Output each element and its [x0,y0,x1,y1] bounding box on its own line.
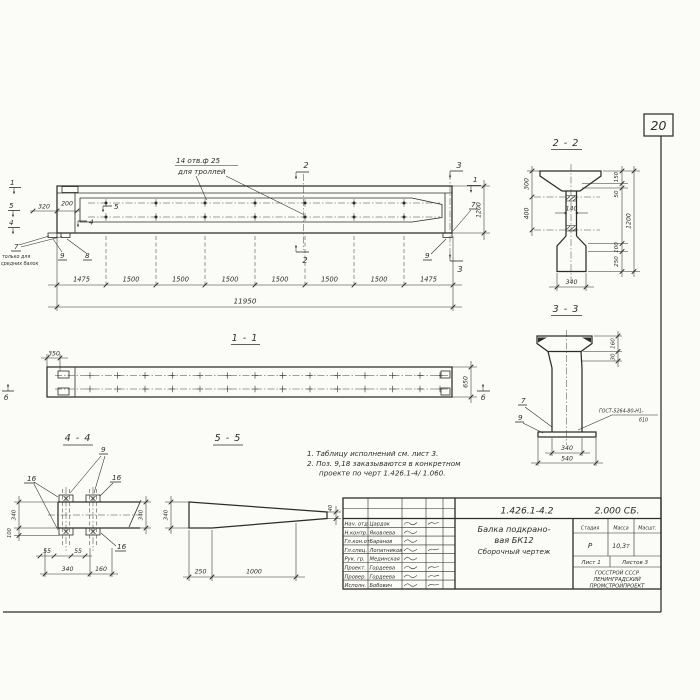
pos-7-right: 7 [471,200,476,209]
dim-200: 200 [61,201,73,208]
name-6: Гордеева [370,574,396,580]
span-dim-6: 1500 [371,276,388,284]
weld-note-line1: ГОСТ-5264-80-Н1- [599,409,644,415]
name-7: Бобович [370,583,393,589]
mark-4-left: 4 [9,218,14,227]
cut-line-1-right: 1 [467,175,481,192]
assembly-drawing: 20 14 отв.ф 25 для троллей 1 5 4 32 [0,0,700,700]
dim-100: 100 [614,242,620,253]
col-scale: Масшт. [638,526,656,532]
section-3-3-title: 3 - 3 [553,304,580,315]
org-line-3: ПРОМСТРОЙПРОЕКТ [590,583,646,590]
section-5-5-title: 5 - 5 [215,433,242,444]
dim-300: 300 [524,178,531,190]
dim-1200-right: 1200 [476,202,483,218]
dim-540: 540 [561,456,573,463]
dim-150: 150 [614,171,620,182]
mark-3-bottom: 3 [457,264,462,274]
org-line-1: ГОССТРОЙ СССР [595,570,640,577]
pos-leaders-right: 7 9 [423,200,478,260]
dim-250: 250 [614,256,620,267]
title-block: Нач. отд Цардак Н.контр. Яковлева Гл.кон… [343,498,661,590]
mark-4-inner: 4 [89,218,94,227]
section-2-2-title: 2 - 2 [553,138,580,149]
cut-line-2: 2 2 [296,160,309,265]
sheet-number: 20 [651,118,667,133]
mark-5-left: 5 [9,201,14,210]
stage-value: Р [588,541,593,550]
dim-340-bottom: 340 [566,279,578,286]
mass-value: 10,3т [612,543,630,550]
pos-8: 8 [85,251,90,260]
drawing-sheet: 20 14 отв.ф 25 для троллей 1 5 4 32 [0,0,700,700]
section-1-1-dims: 350 650 [41,351,477,404]
name-3: Лопатников [369,548,403,554]
note-line-3: проекте по черт 1.426.1-4/ 1.060. [319,469,446,478]
col-mass: Масса [613,526,628,532]
dim-55-a: 55 [43,548,51,555]
role-5: Проект. [345,566,366,572]
mark-5-inner: 5 [114,202,119,211]
dim-1000: 1000 [246,569,262,576]
dim-340-bottom: 340 [62,566,74,573]
main-elevation-view: 14 отв.ф 25 для троллей 1 5 4 320 200 5 … [1,156,490,311]
span-dim-0: 1475 [73,276,90,284]
span-dim-5: 1500 [321,276,338,284]
span-dim-7: 1475 [420,276,437,284]
name-0: Цардак [370,522,391,528]
notes: 1. Таблицу исполнений см. лист 3. 2. Поз… [307,449,461,478]
dim-340: 340 [164,509,170,520]
role-1: Н.контр. [345,530,368,536]
section-3-3-positions: 7 9 ГОСТ-5264-80-Н1- б10 [515,396,658,433]
pos-9-right: 9 [425,251,430,260]
dim-650: 650 [463,376,470,388]
product-title-1: Балка подкрано- [478,524,551,534]
name-2: Баранов [370,539,393,545]
span-dim-2: 1500 [172,276,189,284]
dim-320: 320 [38,204,50,211]
role-3: Гл.спец. [345,548,367,554]
name-4: Мединская [370,557,400,563]
dim-250: 250 [195,569,207,576]
hole-callout: 14 отв.ф 25 для троллей [175,156,304,215]
section-4-4-dims: 340 100 340 55 55 340 160 [7,496,151,577]
left-end-dims: 320 200 [30,201,80,214]
dim-350: 350 [48,351,60,358]
role-0: Нач. отд [345,522,369,528]
name-5: Гордеева [370,566,396,572]
signature-marks [404,522,439,586]
pos-7-left: 7 [14,242,19,251]
dim-1200-section: 1200 [626,213,633,229]
mark-1-right: 1 [473,175,478,184]
dim-55-b: 55 [74,548,82,555]
section-4-4: 4 - 4 9 16 16 16 340 100 [7,433,151,577]
product-title-2: вая БК12 [494,535,533,545]
dim-30: 30 [611,353,617,361]
role-6: Провер. [345,574,367,580]
mark-1-left: 1 [10,178,15,187]
note-line-1: 1. Таблицу исполнений см. лист 3. [307,449,438,458]
pos-16-bottom: 16 [117,542,127,551]
dim-340-right: 340 [139,509,145,520]
span-dim-1: 1500 [123,276,140,284]
signature-rows: Нач. отд Цардак Н.контр. Яковлева Гл.кон… [345,522,440,590]
pos-9: 9 [518,413,523,422]
weld-note-line2: б10 [639,418,648,424]
dim-160: 160 [611,338,617,349]
dim-140: 140 [566,206,578,213]
mark-2-top: 2 [303,160,308,170]
pos-7-note-2: средних балок [1,261,38,267]
col-stage: Стадия [581,526,600,532]
note-line-2: 2. Поз. 9,18 заказываются в конкретном [307,459,461,468]
pos-9-left: 9 [60,251,65,260]
span-dim-3: 1500 [222,276,239,284]
span-dimension-chain: 1475 1500 1500 1500 1500 1500 1500 1475 … [48,236,462,311]
org-line-2: ЛЕНИНГРАДСКИЙ [592,576,641,583]
sheets-label: Листов 3 [621,560,649,566]
product-title-3: Сборочный чертеж [478,547,551,556]
doc-number: 1.426.1-4.2 [501,506,554,517]
pos-leaders-left: 7 только для средних балок 9 8 [1,236,92,267]
pos-16-right: 16 [112,473,122,482]
mark-b-right: б [481,393,486,402]
dim-50: 50 [614,190,620,198]
section-marks-inner: 5 4 [78,202,119,227]
role-4: Рук. гр. [345,557,365,563]
hole-note-line1: 14 отв.ф 25 [176,156,221,165]
pos-7-note-1: только для [2,255,30,260]
dim-40: 40 [328,504,334,511]
name-1: Яковлева [369,530,396,536]
section-1-1-title: 1 - 1 [232,333,259,344]
section-2-2: 2 - 2 300 400 140 150 50 100 250 1200 [524,138,641,291]
section-marks-left: 1 5 4 [8,178,21,233]
pos-7: 7 [521,396,526,405]
section-4-4-title: 4 - 4 [65,433,92,444]
dim-160: 160 [95,566,107,573]
sheet-label: Лист 1 [580,560,601,566]
section-5-5-dims: 340 40 250 1000 [164,496,342,581]
mark-3-top: 3 [456,160,461,170]
dim-340-left: 340 [12,509,18,520]
section-2-2-dims: 300 400 140 150 50 100 250 1200 340 [524,166,641,291]
section-4-4-positions: 9 16 16 16 [24,445,127,551]
mark-b-left: б [4,393,9,402]
pos-16-left: 16 [27,474,37,483]
trolley-holes [105,199,406,221]
dim-340: 340 [561,445,573,452]
dim-400: 400 [524,208,531,220]
span-dim-4: 1500 [272,276,289,284]
dim-total: 11950 [234,297,257,306]
role-7: Исполн. [345,583,367,589]
hole-note-line2: для троллей [177,167,226,176]
role-2: Гл.кон.от [345,539,371,545]
section-3-3: 3 - 3 160 30 7 9 ГОСТ-5264-80-Н1- б10 34… [515,304,658,466]
doc-code: 2.000 СБ. [595,506,640,517]
section-1-1: 1 - 1 350 650 б б [2,333,490,403]
dim-100: 100 [7,527,13,538]
section-3-3-bottom-dims: 340 540 [531,438,603,466]
pos-9: 9 [101,445,106,454]
